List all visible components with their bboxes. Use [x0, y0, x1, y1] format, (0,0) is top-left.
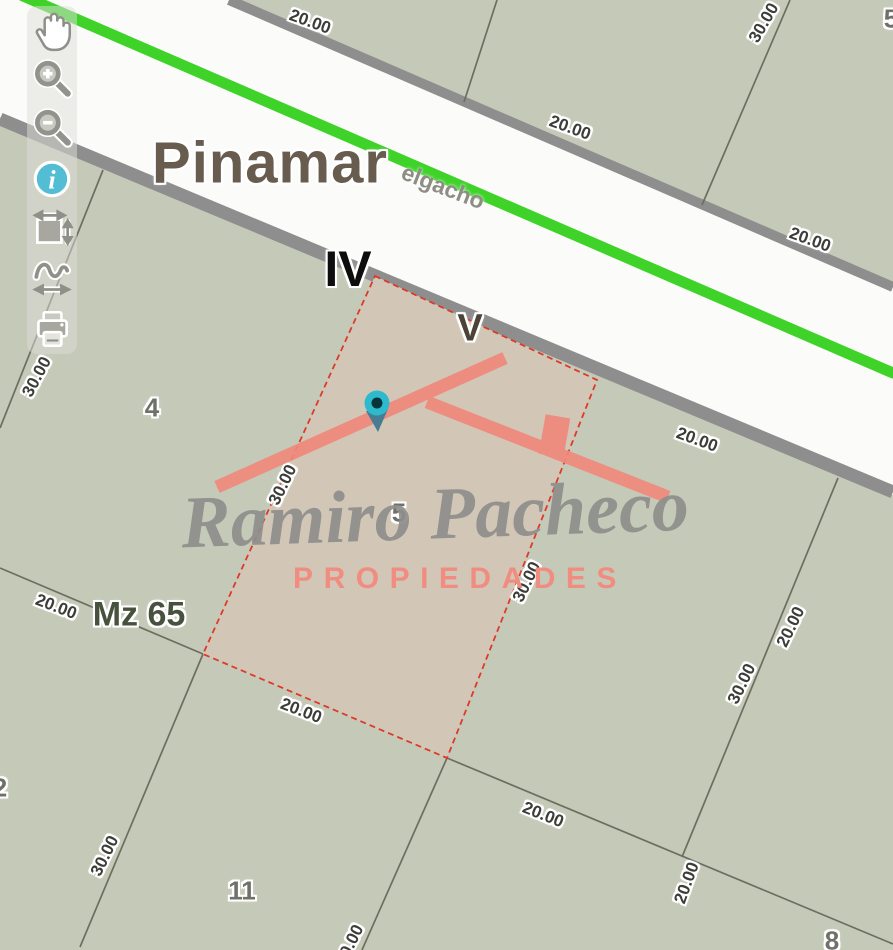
parcel-number: 2: [0, 773, 7, 804]
zoom-in-icon[interactable]: [30, 58, 74, 104]
parcel-number: 4: [145, 393, 159, 424]
block-label: Mz 65: [93, 596, 186, 635]
parcel-number: 5: [392, 498, 406, 529]
measure-path-icon[interactable]: [30, 256, 74, 302]
print-icon[interactable]: [30, 306, 74, 352]
parcel-number: 5: [884, 4, 893, 35]
measure-extent-icon[interactable]: [30, 207, 74, 253]
zone-label-iv: IV: [324, 240, 371, 298]
map-toolbar: i: [27, 6, 77, 354]
info-glyph: i: [48, 165, 56, 194]
parcel-number: 8: [825, 926, 839, 950]
zoom-out-icon[interactable]: [30, 107, 74, 153]
pan-hand-icon[interactable]: [30, 8, 74, 54]
city-name-label: Pinamar: [152, 130, 388, 197]
info-icon[interactable]: i: [30, 157, 74, 203]
zone-label-v: V: [457, 308, 482, 351]
map-canvas[interactable]: [0, 0, 893, 950]
parcel-number: 11: [228, 876, 256, 907]
map-viewport[interactable]: elgacho Pinamar IV V Mz 65 20.00 30.00 2…: [0, 0, 893, 950]
